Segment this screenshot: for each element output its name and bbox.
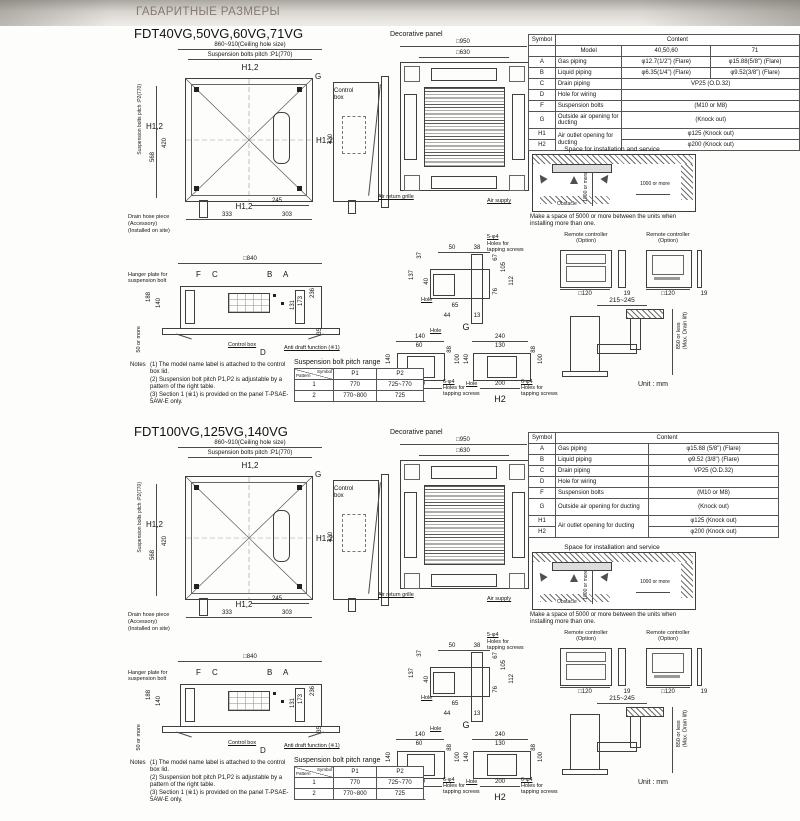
label-drain-piping: Drain piping: [556, 466, 649, 477]
label-gas-piping: Gas piping: [556, 444, 649, 455]
label-h1-holes-2: tapping screws: [443, 789, 480, 795]
dim-h1-top: 140: [415, 732, 425, 739]
dim-line: [597, 305, 647, 306]
remote-1-buttons: [566, 664, 606, 680]
space-title: Space for installation and service: [564, 146, 659, 153]
remote-2-side: [697, 648, 702, 686]
dim-131: 131: [290, 698, 297, 708]
dim-line: [560, 289, 610, 290]
table-row: 2 770~800 725: [295, 391, 424, 402]
remote-label-1: Remote controller (Option): [557, 630, 615, 643]
caption-h2: H2: [494, 394, 506, 404]
dim-950: □950: [456, 39, 470, 46]
label-drain-piping: Drain piping: [555, 79, 622, 90]
remote-2-buttons: [654, 675, 680, 678]
pitch-row1-p1: 770: [334, 778, 377, 789]
dim-g-105: 105: [501, 262, 508, 272]
val-liquid: φ9.52 (3/8") (Flare): [649, 455, 779, 466]
drain-unit-flange: [562, 769, 608, 775]
dim-h2-left: 140: [464, 752, 471, 762]
dim-line: [186, 219, 312, 220]
dim-h1-88: 88: [447, 346, 454, 353]
dim-line: [636, 194, 670, 195]
dim-50-or-more: 50 or more: [136, 326, 142, 353]
dim-drain-reach: 215~245: [609, 297, 635, 304]
bolt-mark: [297, 485, 302, 490]
label-anti-draft: Anti draft function (※1): [284, 743, 340, 749]
sym-b: B: [529, 68, 556, 79]
dim-line: [560, 687, 610, 688]
pitch-corner-pattern: Pattern: [296, 374, 311, 379]
remote-2-side: [697, 250, 702, 288]
dim-line: [188, 59, 312, 60]
dim-ceiling-hole: 860~910(Ceiling hole size): [214, 440, 285, 447]
label-drain-hose-2: (Accessory): [128, 619, 157, 625]
drain-stub: [199, 598, 208, 616]
dim-ceiling-hole: 860~910(Ceiling hole size): [214, 42, 285, 49]
pitch-corner-cell: Symbol Pattern: [295, 369, 334, 380]
panel-slot-left: [404, 94, 417, 160]
dim-630: □630: [456, 448, 470, 455]
dim-1000-horiz: 1000 or more: [640, 182, 670, 188]
dim-h1-100r: 100: [455, 354, 462, 364]
panel-slot-top: [431, 466, 497, 479]
dim-g-105: 105: [501, 660, 508, 670]
dim-remote2-19: 19: [701, 689, 708, 696]
label-c: C: [212, 270, 218, 279]
h2-opening: [487, 754, 517, 776]
table-row: 1 770 725~770: [295, 778, 424, 789]
dim-g-67: 67: [493, 652, 500, 659]
page-title: ГАБАРИТНЫЕ РАЗМЕРЫ: [136, 6, 280, 18]
label-b: B: [267, 668, 272, 677]
table-row: 1 770 725~770: [295, 380, 424, 391]
dim-420-left: 420: [162, 138, 169, 148]
th-content: Content: [556, 433, 779, 444]
label-g-hole: Hole: [421, 297, 432, 303]
dim-pitch-p2: Suspension bolts pitch :P2(770): [138, 482, 144, 553]
note-1: (1) The model name label is attached to …: [150, 362, 292, 376]
label-liquid-piping: Liquid piping: [556, 455, 649, 466]
label-air-return: Air return grille: [378, 592, 414, 598]
drain-stub: [199, 200, 208, 218]
label-h12-top: H1,2: [242, 63, 259, 72]
dim-drain-reach: 215~245: [609, 695, 635, 702]
dim-remote2-19: 19: [701, 291, 708, 298]
unit-mm-label: Unit : mm: [638, 779, 668, 787]
th-model: Model: [555, 46, 622, 57]
val-h1: φ125 (Knock out): [622, 129, 800, 140]
val-outside-air: (Knock out): [622, 112, 800, 129]
dim-140: 140: [156, 696, 163, 706]
ceiling-hatch: [533, 553, 693, 562]
dim-g-44: 44: [444, 313, 451, 320]
sym-d: D: [529, 477, 556, 488]
dim-pitch-p2: Suspension bolts pitch :P2(770): [138, 84, 144, 155]
label-holes-2: tapping screws: [487, 645, 524, 651]
pitch-corner-cell: Symbol Pattern: [295, 767, 334, 778]
label-holes-2: tapping screws: [487, 247, 524, 253]
dim-g-112: 112: [509, 674, 516, 684]
dim-333: 333: [222, 610, 232, 617]
remote-1-display: [566, 652, 606, 662]
space-title: Space for installation and service: [564, 544, 659, 551]
panel-corner-pad: [404, 175, 420, 191]
bottom-grid-box: [228, 691, 270, 711]
remote-2-buttons: [654, 277, 680, 280]
drain-pipe-vertical: [630, 318, 641, 350]
note-1: (1) The model name label is attached to …: [150, 760, 292, 774]
label-h12-bottom: H1,2: [236, 600, 253, 609]
side-view-box: [342, 514, 366, 552]
val-gas: φ15.88 (5/8") (Flare): [649, 444, 779, 455]
dim-remote1-120: □120: [578, 689, 592, 696]
label-air-supply: Air supply: [487, 596, 511, 602]
dim-840: □840: [243, 256, 257, 263]
dim-h1-inner: 60: [416, 741, 423, 748]
dim-g-76: 76: [493, 288, 500, 295]
panel-corner-pad: [509, 175, 525, 191]
dim-remote1-120: □120: [578, 291, 592, 298]
panel-slot-right: [512, 492, 525, 558]
ceiling-hatch: [533, 155, 693, 164]
th-symbol: Symbol: [529, 433, 556, 444]
val-hole-wiring: [622, 90, 800, 101]
label-c: C: [212, 668, 218, 677]
sym-h1: H1: [529, 516, 556, 527]
panel-flange: [162, 726, 340, 733]
val-outside-air: (Knock out): [649, 499, 779, 516]
panel-slot-right: [512, 94, 525, 160]
label-drain-hose-2: (Accessory): [128, 221, 157, 227]
label-5phi4: 5-φ4: [487, 632, 499, 638]
remote-2-screen: [652, 653, 684, 673]
symbol-table: Symbol Content A Gas piping φ15.88 (5/8"…: [528, 432, 779, 538]
remote-label-2: Remote controller (Option): [639, 630, 697, 643]
dim-630: □630: [456, 50, 470, 57]
sym-h1: H1: [529, 129, 556, 140]
label-d: D: [260, 746, 266, 755]
return-grille: [424, 485, 505, 565]
label-g: G: [315, 470, 321, 479]
sym-a: A: [529, 444, 556, 455]
panel-corner-pad: [509, 573, 525, 589]
label-suspension-bolts: Suspension bolts: [555, 101, 622, 112]
dim-h2-top: 240: [495, 732, 505, 739]
dim-g-112: 112: [509, 276, 516, 286]
th-model-71: 71: [711, 46, 800, 57]
bolt-mark: [194, 485, 199, 490]
label-h2-holes-2: tapping screws: [521, 789, 558, 795]
dim-950: □950: [456, 437, 470, 444]
sym-f: F: [529, 101, 556, 112]
dim-line: [419, 455, 509, 456]
dim-g-50: 50: [449, 643, 456, 650]
label-f: F: [196, 668, 201, 677]
label-h2-holes-2: tapping screws: [521, 391, 558, 397]
pipe-mark: [273, 294, 276, 297]
val-h1: φ125 (Knock out): [649, 516, 779, 527]
dim-131: 131: [290, 300, 297, 310]
dim-line: [178, 49, 322, 50]
cell: [529, 46, 556, 57]
model-title: FDT100VG,125VG,140VG: [134, 424, 288, 439]
label-drain-hose-1: Drain hose piece: [128, 214, 169, 220]
remote-1-buttons: [566, 266, 606, 282]
dim-140: 140: [156, 298, 163, 308]
pitch-corner-pattern: Pattern: [296, 772, 311, 777]
dim-g-44: 44: [444, 711, 451, 718]
catalog-page: { "header": { "title": "ГАБАРИТНЫЕ РАЗМЕ…: [0, 0, 800, 800]
pitch-row2-p2: 725: [377, 391, 424, 402]
val-gas-2: φ15.88(5/8") (Flare): [711, 57, 800, 68]
label-a: A: [283, 270, 288, 279]
pitch-row2-p1: 770~800: [334, 391, 377, 402]
section-fdt100-140: FDT100VG,125VG,140VG 860~910(Ceiling hol…: [0, 424, 800, 821]
dim-h2-88: 88: [531, 346, 538, 353]
sym-c: C: [529, 466, 556, 477]
side-view-panel: [381, 474, 389, 606]
panel-corner-pad: [404, 464, 420, 480]
val-suspension-bolts: (M10 or M8): [649, 488, 779, 499]
dim-remote2-120: □120: [661, 689, 675, 696]
pitch-table: Symbol Pattern P1 P2 1 770 725~770 2 770…: [294, 766, 424, 800]
unit-shape: [552, 164, 612, 173]
val-drain: VP25 (O.D.32): [622, 79, 800, 90]
remote-1-display: [566, 254, 606, 264]
label-f: F: [196, 270, 201, 279]
dim-line: [400, 46, 527, 47]
dim-188: 188: [146, 292, 153, 302]
panel-corner-pad: [404, 573, 420, 589]
label-obstacle: Obstacle: [556, 600, 578, 606]
panel-slot-bottom: [431, 176, 497, 189]
dim-h1-inner: 60: [416, 343, 423, 350]
dim-173: 173: [298, 296, 305, 306]
label-air-supply: Air supply: [487, 198, 511, 204]
label-5phi4: 5-φ4: [487, 234, 499, 240]
dim-h1-left: 140: [386, 354, 393, 364]
dim-line: [636, 592, 670, 593]
dim-h2-left: 140: [464, 354, 471, 364]
dim-g-76: 76: [493, 686, 500, 693]
remote-label-2: Remote controller (Option): [639, 232, 697, 245]
label-hole-wiring: Hole for wiring: [555, 90, 622, 101]
label-control-box-bottom: Control box: [228, 740, 256, 746]
dim-g-13: 13: [474, 711, 481, 718]
label-h1-hole: Hole: [430, 328, 441, 334]
unit-mm-label: Unit : mm: [638, 381, 668, 389]
dim-568: 568: [150, 152, 157, 162]
dim-line: [597, 703, 647, 704]
section-fdt40-71: FDT40VG,50VG,60VG,71VG 860~910(Ceiling h…: [0, 26, 800, 423]
bolt-mark: [297, 87, 302, 92]
bolt-mark: [194, 186, 199, 191]
bolt-mark: [297, 186, 302, 191]
drain-unit-body: [570, 316, 600, 374]
dim-h2-inner: 130: [495, 741, 505, 748]
dim-303: 303: [282, 610, 292, 617]
panel-corner-pad: [404, 66, 420, 82]
val-suspension-bolts: (M10 or M8): [622, 101, 800, 112]
th-symbol: Symbol: [529, 35, 556, 46]
sym-h2: H2: [529, 140, 556, 151]
dim-pitch-p1: Suspension bolts pitch :P1(770): [208, 450, 293, 457]
dim-g-137: 137: [409, 668, 416, 678]
pipe-mark: [273, 692, 276, 695]
note-2: (2) Suspension bolt pitch P1,P2 is adjus…: [150, 377, 292, 391]
airflow-arrow: [570, 176, 578, 184]
space-note: Make a space of 5000 or more between the…: [530, 612, 680, 626]
sym-g: G: [529, 499, 556, 516]
val-h2: φ200 (Knock out): [649, 527, 779, 538]
pitch-row1-n: 1: [295, 778, 334, 789]
dim-g-67: 67: [493, 254, 500, 261]
dim-line: [472, 739, 528, 740]
pitch-row1-p1: 770: [334, 380, 377, 391]
pitch-corner-symbol: Symbol: [317, 768, 332, 773]
side-view-stub: [348, 598, 356, 612]
dim-drain-lift: 850 or less (Max. Drain lift): [676, 710, 689, 747]
dim-h2-bottom: 200: [495, 381, 505, 388]
label-control-box-bottom: Control box: [228, 342, 256, 348]
airflow-arrow: [570, 574, 578, 582]
dim-drain-lift: 850 or less (Max. Drain lift): [676, 312, 689, 349]
side-view-stub: [348, 200, 356, 214]
label-drain-hose-3: (Installed on site): [128, 228, 170, 234]
dim-245: 245: [272, 198, 282, 205]
model-title: FDT40VG,50VG,60VG,71VG: [134, 26, 303, 41]
dim-333: 333: [222, 212, 232, 219]
label-outside-air: Outside air opening for ducting: [555, 112, 622, 129]
g-hole: [433, 274, 455, 296]
caption-g: G: [462, 720, 469, 730]
dim-h1-left: 140: [386, 752, 393, 762]
dim-h1-88: 88: [447, 744, 454, 751]
remote-1-side: [618, 250, 626, 288]
dim-g-40: 40: [424, 278, 431, 285]
bolt-mark: [297, 584, 302, 589]
pitch-row1-p2: 725~770: [377, 778, 424, 789]
pipe-mark: [281, 700, 284, 703]
dim-h1-top: 140: [415, 334, 425, 341]
label-gas-piping: Gas piping: [555, 57, 622, 68]
label-drain-hose-1: Drain hose piece: [128, 612, 169, 618]
g-hole: [433, 672, 455, 694]
dim-g-37: 37: [417, 252, 424, 259]
th-content: Content: [555, 35, 799, 46]
label-air-outlet: Air outlet opening for ducting: [556, 516, 649, 538]
dim-50-or-more: 50 or more: [136, 724, 142, 751]
label-decorative-panel: Decorative panel: [390, 31, 443, 39]
panel-corner-pad: [509, 66, 525, 82]
dim-188: 188: [146, 690, 153, 700]
unit-shape: [552, 562, 612, 571]
dim-line: [251, 603, 309, 604]
dim-line: [396, 341, 444, 342]
hanger-bracket-left: [185, 688, 195, 722]
dim-line: [646, 687, 690, 688]
label-h2-hole: Hole: [466, 381, 477, 387]
dim-line: [400, 444, 527, 445]
label-anti-draft: Anti draft function (※1): [284, 345, 340, 351]
label-h12-left: H1,2: [146, 122, 163, 131]
dim-236: 236: [310, 288, 317, 298]
note-3: (3) Section 1 (※1) is provided on the pa…: [150, 790, 292, 804]
pitch-row1-p2: 725~770: [377, 380, 424, 391]
pitch-col-p2: P2: [377, 767, 424, 778]
dim-h2-88: 88: [531, 744, 538, 751]
dim-line: [672, 309, 673, 375]
dim-g-65: 65: [452, 303, 459, 310]
dim-h1-100r: 100: [455, 752, 462, 762]
label-h12-bottom: H1,2: [236, 202, 253, 211]
dim-g-38: 38: [474, 245, 481, 252]
pitch-table: Symbol Pattern P1 P2 1 770 725~770 2 770…: [294, 368, 424, 402]
bottom-grid-box: [228, 293, 270, 313]
pipe-mark: [281, 302, 284, 305]
label-h12-left: H1,2: [146, 520, 163, 529]
dim-line: [438, 650, 490, 651]
th-model-small: 40,50,60: [622, 46, 711, 57]
dim-line: [646, 289, 690, 290]
dim-line: [178, 661, 322, 662]
sym-c: C: [529, 79, 556, 90]
dim-line: [480, 388, 520, 389]
panel-slot-bottom: [431, 574, 497, 587]
remote-label-1: Remote controller (Option): [557, 232, 615, 245]
dim-35: 35: [317, 328, 324, 335]
dim-pitch-p1: Suspension bolts pitch :P1(770): [208, 52, 293, 59]
label-drain-hose-3: (Installed on site): [128, 626, 170, 632]
label-d: D: [260, 348, 266, 357]
dim-line: [178, 263, 322, 264]
remote-1-side: [618, 648, 626, 686]
dim-g-38: 38: [474, 643, 481, 650]
dim-35: 35: [317, 726, 324, 733]
dim-line: [188, 457, 312, 458]
pitch-row2-p2: 725: [377, 789, 424, 800]
dim-g-37: 37: [417, 650, 424, 657]
panel-slot-left: [404, 492, 417, 558]
label-liquid-piping: Liquid piping: [555, 68, 622, 79]
label-outside-air: Outside air opening for ducting: [556, 499, 649, 516]
label-hole-wiring: Hole for wiring: [556, 477, 649, 488]
dim-h2-top: 240: [495, 334, 505, 341]
val-liquid-2: φ9.52(3/8") (Flare): [711, 68, 800, 79]
panel-slot-top: [431, 68, 497, 81]
pitch-table-title: Suspension bolt pitch range: [294, 757, 380, 764]
dim-g-50: 50: [449, 245, 456, 252]
label-hanger-2: suspension bolt: [128, 278, 166, 284]
label-g: G: [315, 72, 321, 81]
bolt-mark: [194, 87, 199, 92]
sym-a: A: [529, 57, 556, 68]
label-hanger-2: suspension bolt: [128, 676, 166, 682]
control-box-shape: [273, 510, 290, 562]
caption-h2: H2: [494, 792, 506, 802]
drain-hose-flexible: [626, 707, 664, 717]
space-note: Make a space of 5000 or more between the…: [530, 214, 680, 228]
drain-unit-flange: [562, 371, 608, 377]
dim-remote2-120: □120: [661, 291, 675, 298]
note-3: (3) Section 1 (※1) is provided on the pa…: [150, 392, 292, 406]
dim-line: [480, 786, 520, 787]
notes-label: Notes: [130, 362, 146, 369]
label-decorative-panel: Decorative panel: [390, 429, 443, 437]
dim-g-40: 40: [424, 676, 431, 683]
pitch-col-p1: P1: [334, 369, 377, 380]
